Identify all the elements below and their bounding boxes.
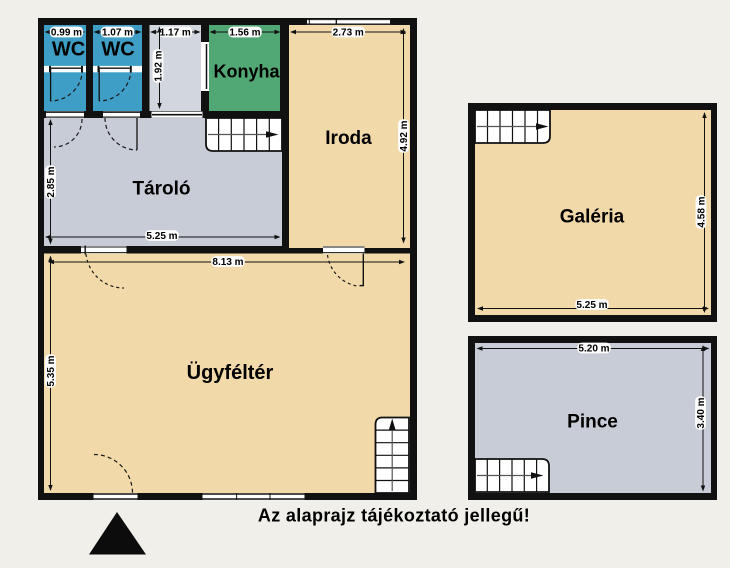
svg-text:8.13 m: 8.13 m: [212, 257, 243, 268]
svg-text:1.17 m: 1.17 m: [160, 28, 191, 39]
svg-text:4.58 m: 4.58 m: [697, 196, 708, 227]
svg-text:1.07 m: 1.07 m: [102, 28, 133, 39]
svg-text:Az alaprajz tájékoztató jelleg: Az alaprajz tájékoztató jellegű!: [258, 506, 530, 526]
svg-text:2.73 m: 2.73 m: [333, 28, 364, 39]
svg-text:Ügyféltér: Ügyféltér: [187, 361, 274, 384]
svg-text:0.99 m: 0.99 m: [51, 28, 82, 39]
svg-text:5.20 m: 5.20 m: [578, 344, 609, 355]
svg-text:5.25 m: 5.25 m: [576, 300, 607, 311]
svg-text:3.40 m: 3.40 m: [696, 397, 707, 428]
svg-text:Konyha: Konyha: [213, 62, 280, 82]
svg-text:Iroda: Iroda: [325, 128, 372, 149]
svg-text:1.92 m: 1.92 m: [154, 50, 165, 81]
svg-text:WC: WC: [52, 39, 85, 61]
svg-text:2.85 m: 2.85 m: [46, 166, 57, 197]
svg-text:Tároló: Tároló: [132, 179, 190, 200]
svg-text:5.35 m: 5.35 m: [46, 355, 57, 386]
svg-text:5.25 m: 5.25 m: [146, 231, 177, 242]
svg-text:Pince: Pince: [567, 412, 618, 433]
svg-text:WC: WC: [101, 39, 134, 61]
svg-text:Galéria: Galéria: [560, 207, 625, 228]
svg-text:4.92 m: 4.92 m: [399, 120, 410, 151]
svg-text:1.56 m: 1.56 m: [229, 28, 260, 39]
